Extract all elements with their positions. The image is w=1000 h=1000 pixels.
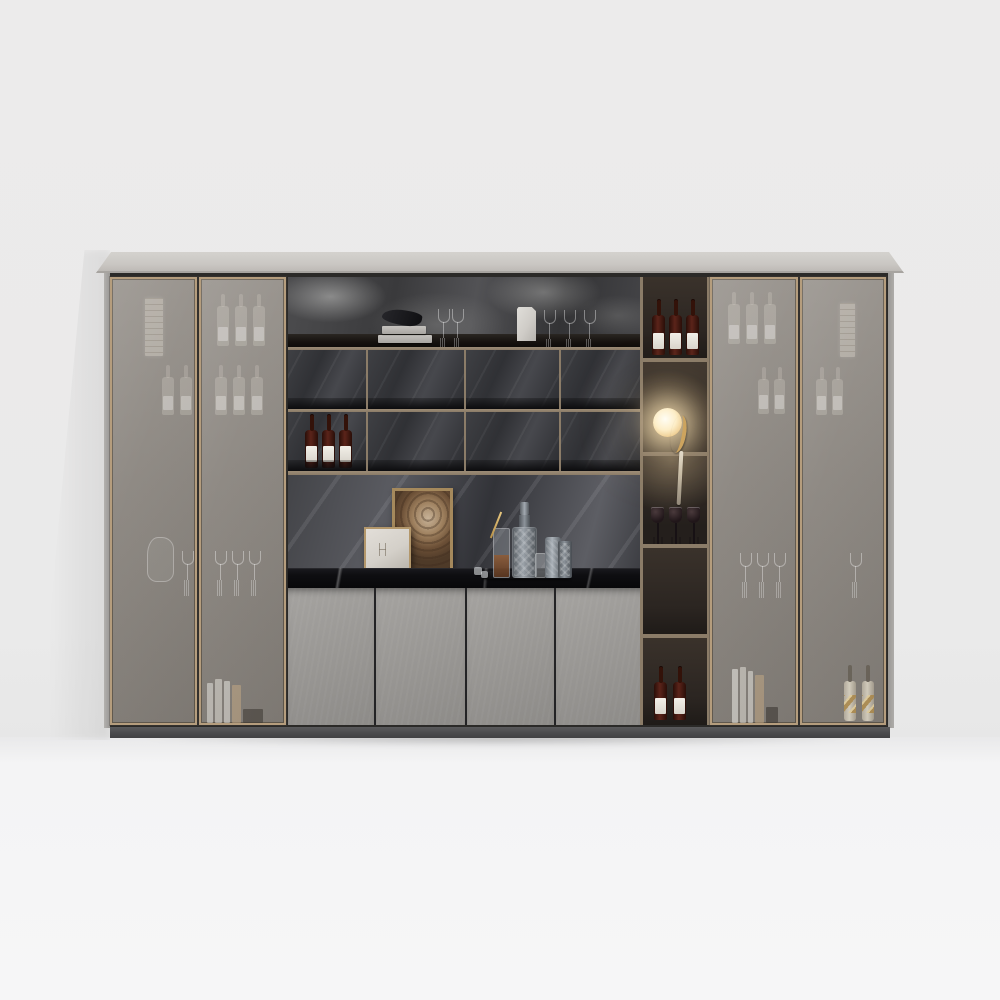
glass-door-left-1 [110, 277, 197, 725]
glass-sheen [802, 279, 884, 723]
wine-glass [438, 309, 450, 341]
black-marble-counter [288, 568, 643, 588]
glass-door-right-2 [800, 277, 886, 725]
glass-sheen [712, 279, 796, 723]
counter-display-area [288, 475, 643, 588]
dark-wine-glass [687, 507, 701, 541]
marble-back-panel [288, 475, 643, 570]
glass-sheen [201, 279, 284, 723]
wine-bottle [305, 430, 318, 468]
wine-glass [584, 310, 596, 342]
wine-glass [452, 309, 464, 341]
glass-sheen [112, 279, 195, 723]
wine-bottle [686, 315, 699, 355]
dark-wine-glass [669, 507, 683, 541]
framed-print-small [364, 527, 411, 574]
patterned-glass [558, 541, 572, 578]
wine-glass [544, 310, 556, 342]
wine-bottle [673, 682, 686, 720]
cubby [288, 350, 366, 409]
top-open-shelf [288, 277, 643, 347]
cubby [368, 412, 464, 471]
glass-door-left-2 [199, 277, 286, 725]
wine-bottle [652, 315, 665, 355]
cabinet-right-side-panel [888, 273, 894, 728]
cubby [561, 412, 641, 471]
wine-bottle [322, 430, 335, 468]
glass-door-right-1 [710, 277, 798, 725]
lower-door [288, 588, 374, 725]
cubby-with-bottles [288, 412, 366, 471]
niche-compartment-bottles [643, 277, 707, 358]
wine-bottle [339, 430, 352, 468]
highball-glass [493, 528, 510, 578]
dark-wine-glass [651, 507, 665, 541]
cubby [561, 350, 641, 409]
decanter-neck [519, 515, 530, 527]
cubby [466, 350, 559, 409]
wine-glass [564, 310, 576, 342]
cubby [466, 412, 559, 471]
cubby [368, 350, 464, 409]
wine-bottle [654, 682, 667, 720]
cabinet-top-slab [96, 252, 904, 273]
floor [0, 737, 1000, 1000]
cubby-row-1 [288, 350, 643, 409]
lower-door-row [288, 588, 643, 725]
open-niche-column [640, 277, 710, 725]
paper-bag [517, 307, 536, 341]
stacked-books [378, 325, 432, 343]
render-scene [0, 0, 1000, 1000]
wine-bottle [669, 315, 682, 355]
cabinet-plinth [110, 727, 890, 738]
niche-compartment-empty [643, 548, 707, 634]
decanter-stopper [520, 502, 529, 515]
lower-door [467, 588, 554, 725]
center-display-section [288, 277, 643, 725]
ice-cube [481, 571, 488, 578]
niche-compartment-bottles-2 [643, 638, 707, 725]
lower-door [376, 588, 465, 725]
cubby-row-2 [288, 412, 643, 471]
niche-compartment-glasses [643, 456, 707, 544]
lower-door [556, 588, 643, 725]
crystal-decanter [512, 527, 537, 578]
